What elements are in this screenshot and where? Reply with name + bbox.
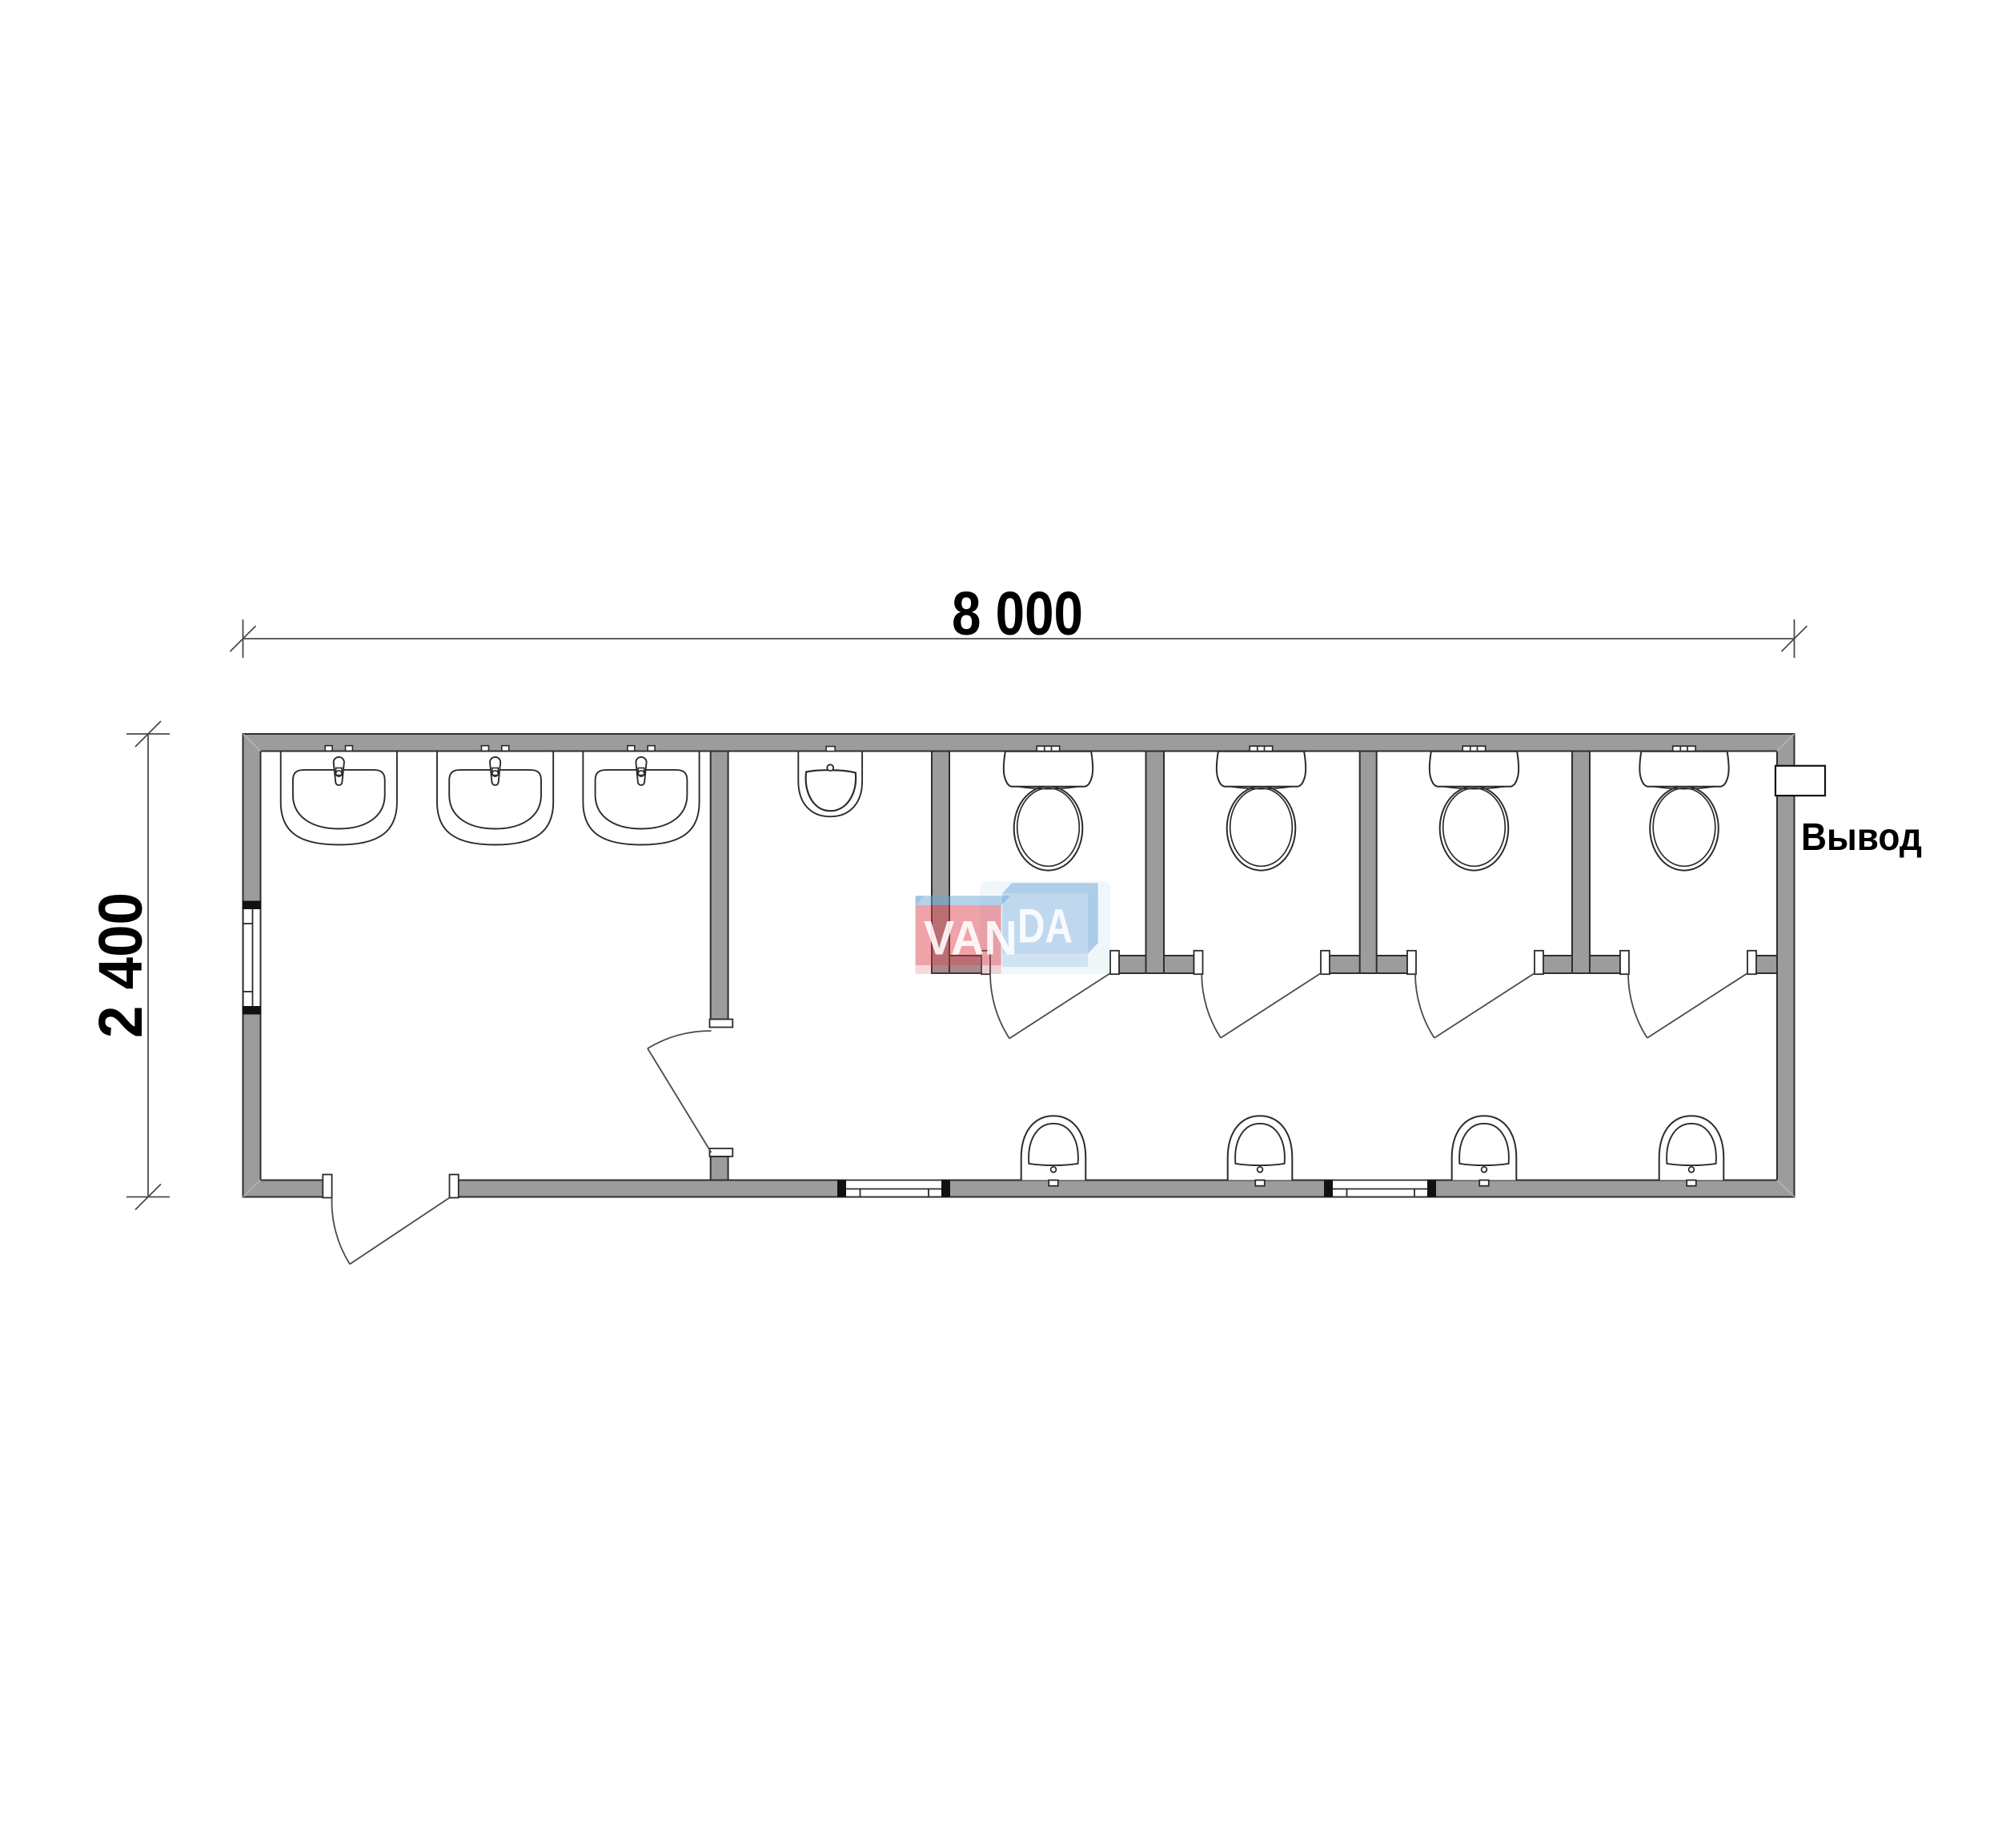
svg-text:VAN: VAN (924, 912, 1017, 965)
svg-text:Вывод: Вывод (1801, 816, 1922, 859)
svg-text:2 400: 2 400 (86, 892, 155, 1038)
svg-text:DA: DA (1017, 900, 1073, 953)
svg-text:8 000: 8 000 (952, 579, 1083, 648)
